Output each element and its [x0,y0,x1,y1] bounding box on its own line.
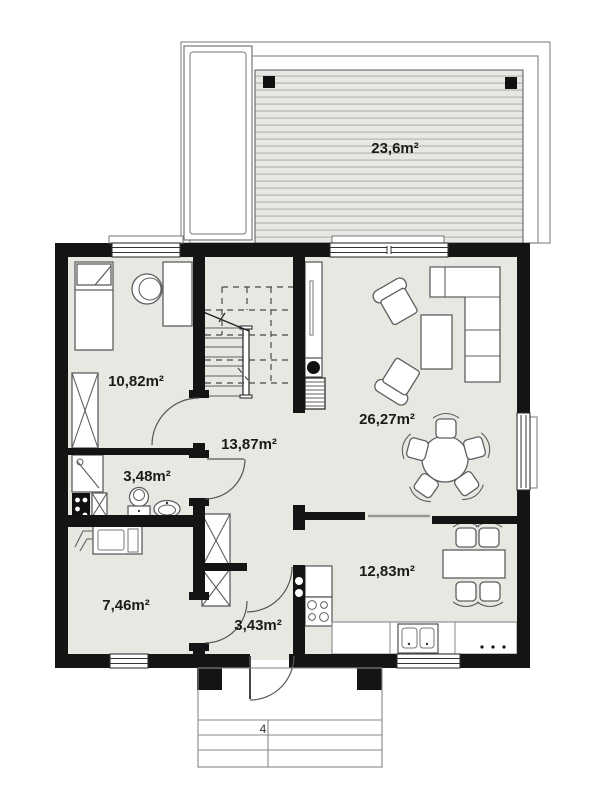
utility-area-label: 7,46m² [102,597,150,614]
hall-area-label: 13,87m² [221,436,277,453]
living-terrace-door [330,236,448,257]
hall-closet-upper [202,514,230,567]
pillow [77,264,111,285]
terrace-post-left [263,76,275,88]
fridge [305,566,332,597]
wall-pipe-dot [295,577,303,585]
kitchen-area-label: 12,83m² [359,563,415,580]
floor-plan-svg: 23,6m² [0,0,600,802]
bedroom-window [109,236,183,257]
bed [75,262,113,350]
floor-plan: 23,6m² [0,0,600,802]
steps-count-label: 4 [260,722,267,736]
porch-platform [198,668,382,767]
terrace-area-label: 23,6m² [371,140,419,157]
wall-pipe-dot [295,589,303,597]
living-side-window [517,413,537,490]
washbasin [154,501,180,518]
stair-railing-cap-bottom [240,395,252,398]
media-wall [305,262,325,409]
bathroom-area-label: 3,48m² [123,468,171,485]
vent-shaft [92,493,107,517]
entry-door [250,656,294,700]
utility-window [110,654,148,668]
tv-screen [310,281,313,335]
kitchen-table [443,550,505,578]
hall-closet-lower [202,569,230,606]
cooktop [305,597,332,626]
vestibule-area-label: 3,43m² [234,617,282,634]
porch-steps [198,720,382,767]
stair-railing [243,329,249,397]
terrace-sidewall-inner [190,52,246,234]
stove [307,361,320,374]
living-room-area-label: 26,27m² [359,411,415,428]
wardrobe [72,373,98,448]
porch-column-left [197,668,222,690]
toilet [128,488,150,518]
porch: 4 [197,668,382,767]
radiator [305,378,325,409]
porch-column-right [357,668,382,690]
coffee-table [421,315,452,369]
terrace: 23,6m² [181,42,550,243]
shower [72,455,103,492]
bedroom-area-label: 10,82m² [108,373,164,390]
terrace-post-right [505,77,517,89]
desk [163,262,192,326]
kitchen-window [397,654,460,668]
kitchen-sink [398,624,438,653]
